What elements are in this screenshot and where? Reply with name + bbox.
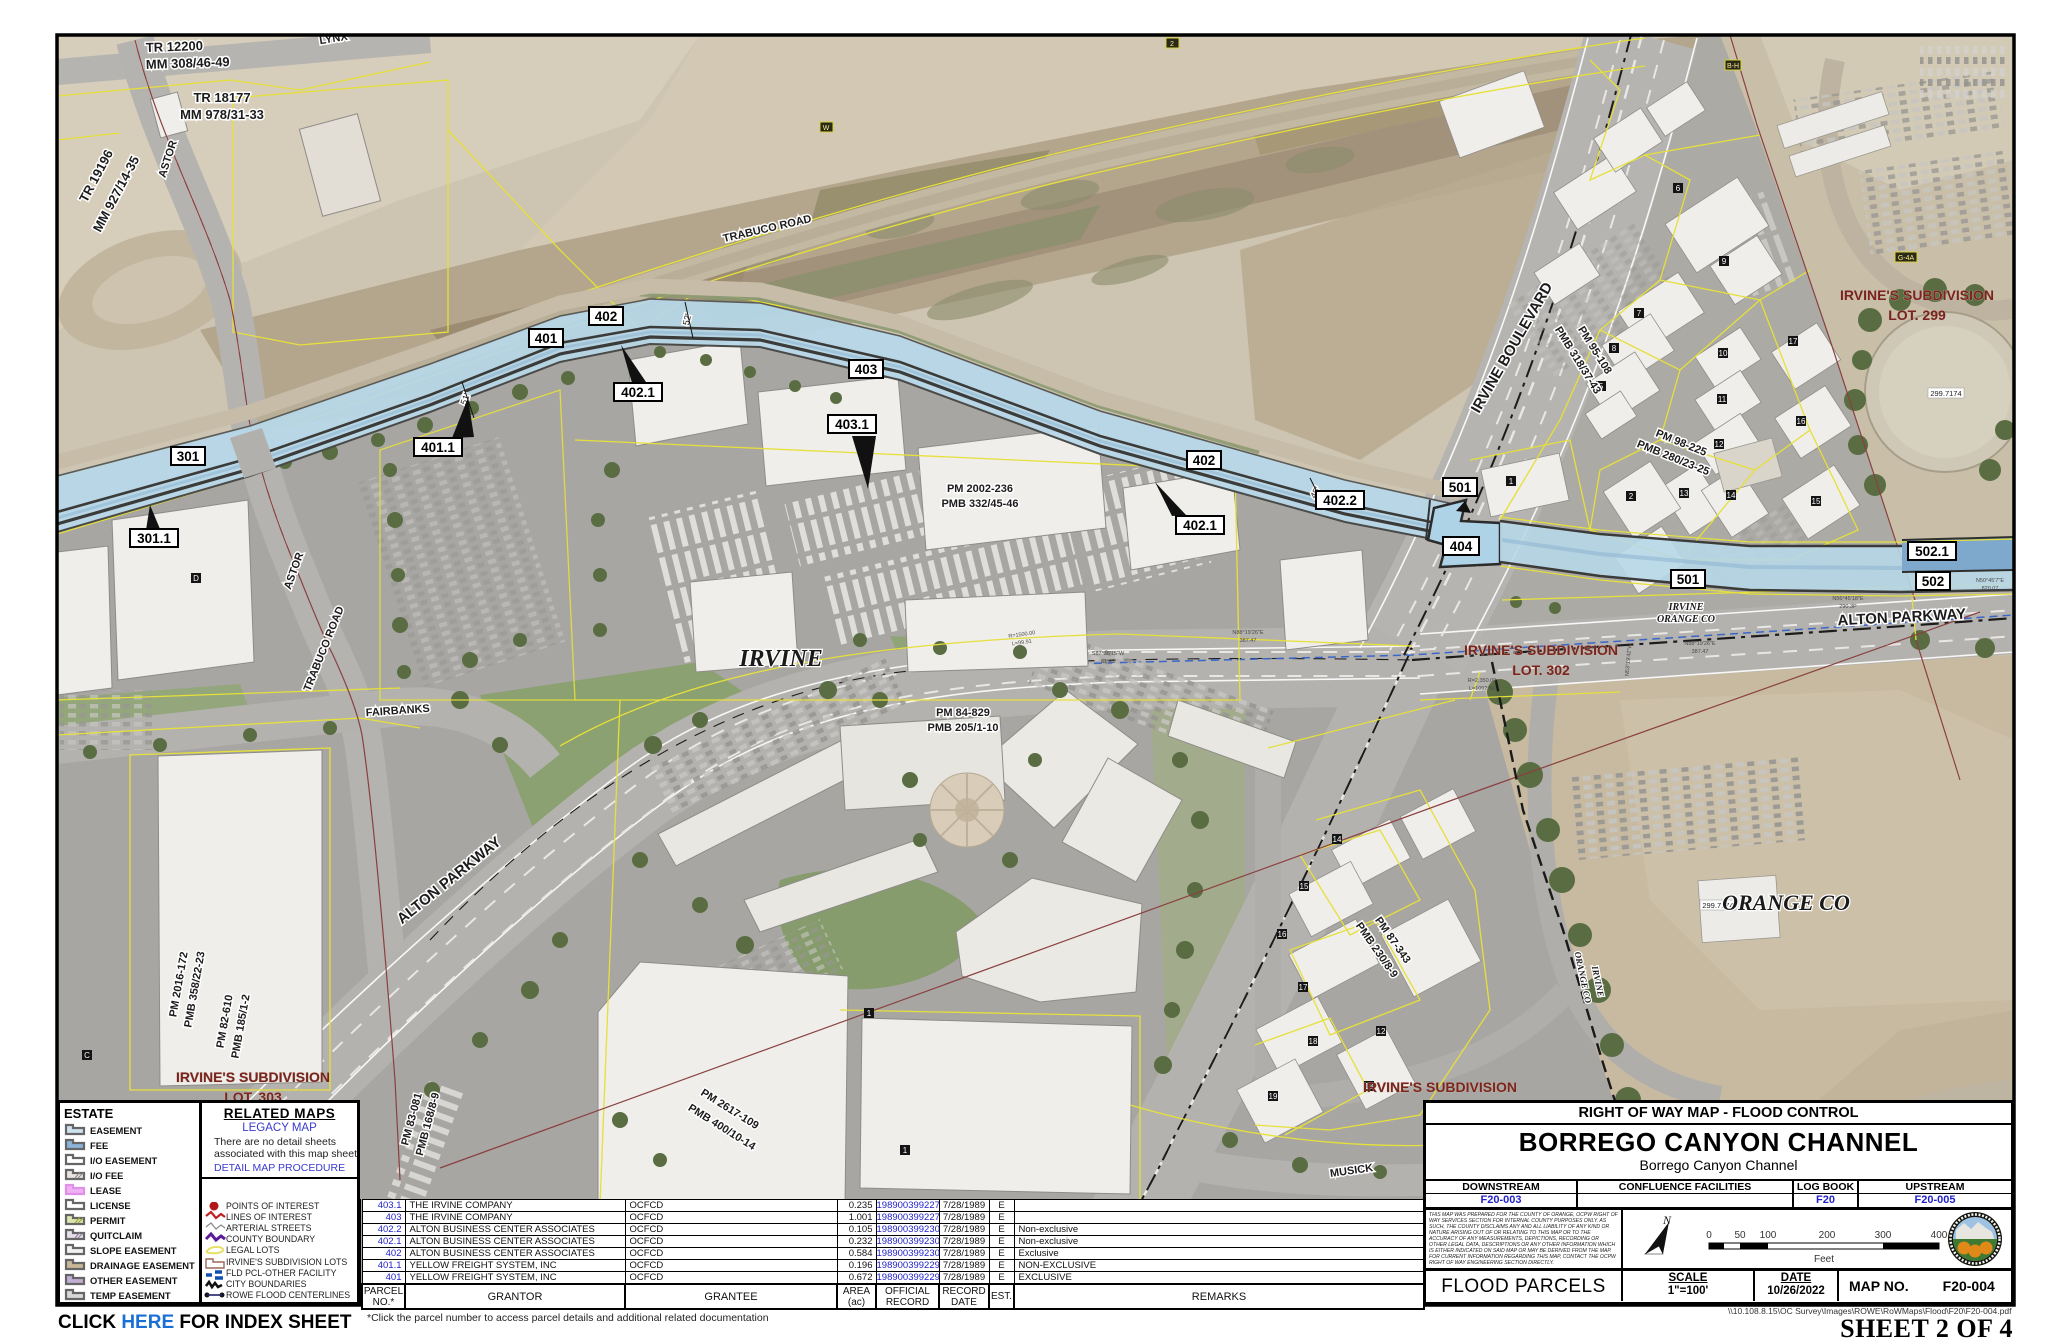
svg-text:IRVINE'S SUBDIVISION: IRVINE'S SUBDIVISION <box>176 1069 330 1085</box>
svg-text:11: 11 <box>1718 395 1727 404</box>
svg-text:19: 19 <box>1269 1092 1278 1101</box>
svg-text:402.2: 402.2 <box>1323 493 1357 508</box>
svg-text:18: 18 <box>1309 1037 1318 1046</box>
svg-text:W: W <box>823 125 830 132</box>
svg-text:B-H: B-H <box>1727 63 1739 70</box>
svg-text:820.07: 820.07 <box>1982 586 1999 592</box>
svg-text:9: 9 <box>1722 257 1727 266</box>
svg-text:IRVINE: IRVINE <box>738 646 823 672</box>
svg-text:OTHER EASEMENT: OTHER EASEMENT <box>90 1275 178 1286</box>
svg-text:17: 17 <box>1789 337 1798 346</box>
svg-text:301: 301 <box>177 449 200 464</box>
svg-text:MM 308/46-49: MM 308/46-49 <box>146 54 230 72</box>
svg-text:290.3P: 290.3P <box>1839 604 1857 610</box>
svg-text:299.7174: 299.7174 <box>1930 389 1961 398</box>
svg-text:13: 13 <box>1680 489 1689 498</box>
svg-text:403.1: 403.1 <box>835 417 869 432</box>
svg-text:LEASE: LEASE <box>90 1185 121 1196</box>
svg-text:12: 12 <box>1715 440 1724 449</box>
svg-text:N50°45'7"E: N50°45'7"E <box>1976 578 2004 584</box>
svg-text:16: 16 <box>1278 930 1287 939</box>
svg-text:DRAINAGE EASEMENT: DRAINAGE EASEMENT <box>90 1260 195 1271</box>
svg-text:ARTERIAL STREETS: ARTERIAL STREETS <box>226 1223 312 1233</box>
svg-text:502: 502 <box>1922 574 1945 589</box>
svg-text:PMB 205/1-10: PMB 205/1-10 <box>928 722 999 734</box>
svg-text:0: 0 <box>1706 1230 1712 1241</box>
svg-text:501: 501 <box>1677 572 1700 587</box>
svg-text:ORANGE CO: ORANGE CO <box>1722 890 1850 915</box>
svg-text:16: 16 <box>1797 417 1806 426</box>
svg-text:PMB 332/45-46: PMB 332/45-46 <box>941 498 1018 510</box>
svg-text:6: 6 <box>1676 184 1681 193</box>
svg-text:D: D <box>193 574 199 583</box>
svg-text:300: 300 <box>1875 1230 1892 1241</box>
svg-text:PM 2002-236: PM 2002-236 <box>947 483 1013 495</box>
svg-text:8: 8 <box>1612 344 1617 353</box>
svg-text:LEGAL LOTS: LEGAL LOTS <box>226 1245 280 1255</box>
svg-text:401: 401 <box>535 331 558 346</box>
svg-text:387.47: 387.47 <box>1692 649 1709 655</box>
svg-text:50: 50 <box>1734 1230 1746 1241</box>
svg-text:TEMP EASEMENT: TEMP EASEMENT <box>90 1290 171 1301</box>
svg-text:403: 403 <box>855 362 878 377</box>
svg-text:IRVINE: IRVINE <box>1668 602 1704 613</box>
svg-text:TR 18177: TR 18177 <box>193 90 250 105</box>
svg-text:502.1: 502.1 <box>1915 544 1949 559</box>
svg-text:PM 84-829: PM 84-829 <box>936 707 990 719</box>
svg-text:IRVINE'S SUBDIVISION LOTS: IRVINE'S SUBDIVISION LOTS <box>226 1257 347 1267</box>
svg-text:SLOPE EASEMENT: SLOPE EASEMENT <box>90 1245 177 1256</box>
svg-text:200: 200 <box>1819 1230 1836 1241</box>
svg-text:15: 15 <box>1812 497 1821 506</box>
svg-text:14: 14 <box>1333 835 1342 844</box>
svg-text:LOT. 302: LOT. 302 <box>1512 662 1570 678</box>
svg-text:401.1: 401.1 <box>421 440 455 455</box>
svg-text:FEE: FEE <box>90 1140 108 1151</box>
svg-text:501: 501 <box>1449 480 1472 495</box>
svg-text:L=1092.84: L=1092.84 <box>1469 686 1495 692</box>
svg-text:2: 2 <box>1629 492 1634 501</box>
svg-text:402: 402 <box>595 309 618 324</box>
svg-text:LICENSE: LICENSE <box>90 1200 131 1211</box>
svg-text:10: 10 <box>1719 349 1728 358</box>
svg-text:15: 15 <box>1300 882 1309 891</box>
svg-text:12: 12 <box>1377 1027 1386 1036</box>
svg-text:QUITCLAIM: QUITCLAIM <box>90 1230 142 1241</box>
svg-text:2: 2 <box>1170 41 1174 48</box>
svg-text:402: 402 <box>1193 453 1216 468</box>
svg-text:TR 12200: TR 12200 <box>146 38 204 55</box>
svg-text:301.1: 301.1 <box>137 531 171 546</box>
svg-text:17: 17 <box>1299 983 1308 992</box>
svg-text:402.1: 402.1 <box>621 385 655 400</box>
svg-text:61.42: 61.42 <box>1101 659 1115 665</box>
svg-text:POINTS OF INTEREST: POINTS OF INTEREST <box>226 1202 320 1211</box>
svg-text:1: 1 <box>1509 477 1514 486</box>
svg-text:ORANGE CO: ORANGE CO <box>1657 614 1715 625</box>
svg-text:EASEMENT: EASEMENT <box>90 1125 142 1136</box>
svg-text:R=2,350.00: R=2,350.00 <box>1468 678 1497 684</box>
svg-text:I/O EASEMENT: I/O EASEMENT <box>90 1155 157 1166</box>
svg-text:N88°19'26"E: N88°19'26"E <box>1684 641 1716 647</box>
svg-text:1: 1 <box>867 1009 872 1018</box>
svg-text:G-4A: G-4A <box>1898 255 1915 262</box>
svg-text:N56°45'18"E: N56°45'18"E <box>1832 596 1864 602</box>
svg-text:Feet: Feet <box>1814 1254 1834 1265</box>
svg-text:IRVINE'S SUBDIVISION: IRVINE'S SUBDIVISION <box>1363 1079 1517 1095</box>
svg-text:FLD PCL-OTHER FACILITY: FLD PCL-OTHER FACILITY <box>226 1268 337 1278</box>
svg-text:I/O FEE: I/O FEE <box>90 1170 123 1181</box>
svg-text:N88°19'26"E: N88°19'26"E <box>1232 630 1264 636</box>
svg-text:402.1: 402.1 <box>1183 518 1217 533</box>
svg-text:404: 404 <box>1450 539 1473 554</box>
svg-text:LOT. 299: LOT. 299 <box>1888 307 1946 323</box>
svg-text:IRVINE'S SUBDIVISION: IRVINE'S SUBDIVISION <box>1464 642 1618 658</box>
svg-text:IRVINE'S SUBDIVISION: IRVINE'S SUBDIVISION <box>1840 287 1994 303</box>
svg-text:COUNTY BOUNDARY: COUNTY BOUNDARY <box>226 1234 315 1244</box>
svg-text:LINES OF INTEREST: LINES OF INTEREST <box>226 1212 313 1222</box>
svg-text:CITY BOUNDARIES: CITY BOUNDARIES <box>226 1279 307 1289</box>
svg-text:ROWE FLOOD CENTERLINES: ROWE FLOOD CENTERLINES <box>226 1290 350 1300</box>
svg-text:100: 100 <box>1760 1230 1777 1241</box>
svg-text:C: C <box>84 1051 90 1060</box>
svg-text:MM 978/31-33: MM 978/31-33 <box>180 107 264 122</box>
svg-text:387.47: 387.47 <box>1240 638 1257 644</box>
svg-text:1: 1 <box>903 1146 908 1155</box>
svg-text:7: 7 <box>1637 309 1642 318</box>
svg-text:S87°36'15"W: S87°36'15"W <box>1092 651 1125 657</box>
svg-text:400: 400 <box>1931 1230 1948 1241</box>
svg-text:14: 14 <box>1727 491 1736 500</box>
svg-text:PERMIT: PERMIT <box>90 1215 126 1226</box>
